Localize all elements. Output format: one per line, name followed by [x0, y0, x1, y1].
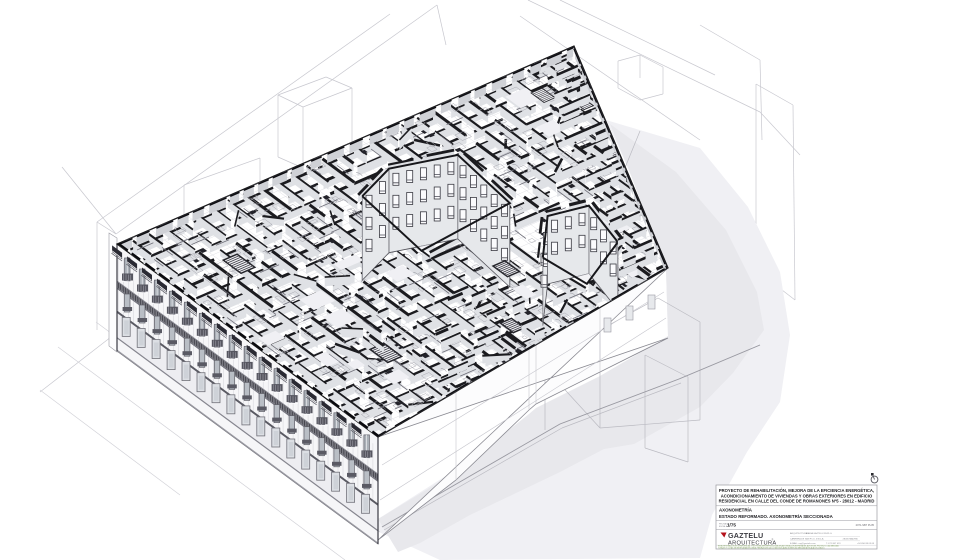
svg-text:CARRERA DE SAN FCO. 4 BCI-A: CARRERA DE SAN FCO. 4 BCI-A	[790, 538, 824, 541]
svg-text:E-MAIL: mg@gaztelu.com: E-MAIL: mg@gaztelu.com	[790, 542, 816, 545]
svg-text:1/75: 1/75	[727, 523, 736, 528]
svg-text:T: 671 867 019: T: 671 867 019	[826, 543, 841, 545]
svg-text:28005 MADRID: 28005 MADRID	[843, 538, 859, 541]
svg-text:TOTALES Y COTAS SE VERIFICARÁN: TOTALES Y COTAS SE VERIFICARÁN EN OBRA. …	[718, 546, 825, 549]
svg-text:AXONOMETRÍA: AXONOMETRÍA	[719, 508, 753, 513]
svg-text:MARÍA GAZTELU RUIZ-G: MARÍA GAZTELU RUIZ-G	[806, 532, 832, 535]
svg-text:RESIDENCIAL EN CALLE DEL CONDE: RESIDENCIAL EN CALLE DEL CONDE DE ROMANO…	[719, 499, 875, 504]
svg-text:2071-SB7 PL05: 2071-SB7 PL05	[856, 523, 875, 527]
svg-text:+34 656 88 03 08: +34 656 88 03 08	[857, 543, 875, 545]
svg-text:ESTADO REFORMADO. AXONOMETRÍA: ESTADO REFORMADO. AXONOMETRÍA SECCIONADA	[719, 514, 834, 519]
svg-text:GAZTELU: GAZTELU	[728, 531, 763, 540]
svg-text:®: ®	[772, 539, 774, 542]
